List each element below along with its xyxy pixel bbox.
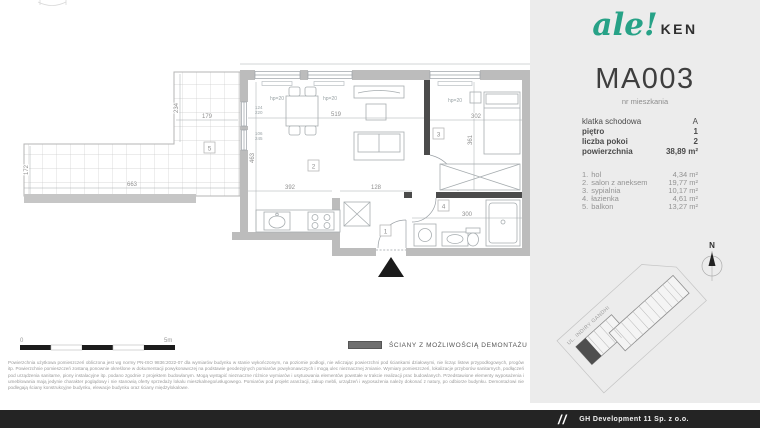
furniture-bath-hall [344,200,520,246]
svg-text:172: 172 [24,164,30,175]
developer-footer: // GH Development 11 Sp. z o.o. [0,410,760,428]
svg-text:361: 361 [468,134,474,145]
legend-label: ŚCIANY Z MOŻLIWOŚCIĄ DEMONTAŻU [389,342,527,349]
shower [486,200,520,246]
scale-end-label: 5m [164,338,172,344]
svg-text:hp=20: hp=20 [323,96,337,102]
svg-text:4: 4 [442,204,446,211]
room-list: 1. hol 4,34 m² 2. salon z aneksem 19,77 … [582,171,698,211]
svg-text:392: 392 [285,185,296,191]
stove [308,212,334,230]
svg-text:2: 2 [312,164,316,171]
nightstand [470,92,481,103]
legend: ŚCIANY Z MOŻLIWOŚCIĄ DEMONTAŻU [348,341,527,349]
svg-text:3: 3 [437,132,441,139]
developer-name: GH Development 11 Sp. z o.o. [579,416,689,423]
svg-text:128: 128 [371,185,382,191]
entrance-arrow [378,257,404,277]
svg-text:179: 179 [202,114,213,120]
brand-logo-script: ale! [592,10,657,40]
svg-text:300: 300 [462,212,473,218]
svg-text:220: 220 [255,110,263,115]
brand-logo-suffix: KEN [661,21,698,40]
washing-machine [414,224,436,246]
detail-label: powierzchnia [582,147,633,157]
brand-logo: ale! KEN [530,0,760,40]
radiators [262,82,472,86]
svg-text:hp=20: hp=20 [448,98,462,104]
svg-text:519: 519 [331,112,342,118]
detail-label: klatka schodowa [582,117,641,127]
detail-label: piętro [582,127,604,137]
svg-text:302: 302 [471,114,482,120]
wardrobe-bedroom [440,164,520,190]
detail-value: A [693,117,698,127]
room-list-item: 5. balkon 13,27 m² [582,203,698,211]
room-number-bathroom: 4 [438,200,449,211]
site-geometry: UL. INDIRY GANDHI [557,248,706,392]
floorplan-card: 519 463 392 128 302 361 300 663 234 179 … [0,0,760,428]
balcony-slab-edge [24,194,196,203]
demountable-wall-swatch [348,341,382,349]
scale-segments [20,345,175,350]
unit-details: klatka schodowa A piętro 1 liczba pokoi … [582,117,698,157]
armchair [366,104,386,120]
svg-text:245: 245 [255,136,263,141]
toilet [466,228,480,246]
disclaimer-text: Powierzchnia użytkowa pomieszczeń oblicz… [8,360,524,391]
bath-sink [442,232,468,246]
detail-value: 2 [694,137,698,147]
wardrobe-hall [344,202,370,226]
floor-plan: 519 463 392 128 302 361 300 663 234 179 … [0,0,530,330]
svg-text:463: 463 [250,152,256,163]
north-label: N [709,241,715,250]
north-arrow: N [702,241,722,281]
room-number-balcony: 5 [204,142,215,153]
detail-row-rooms: liczba pokoi 2 [582,137,698,147]
svg-text:1: 1 [384,229,388,236]
svg-text:234: 234 [174,102,180,113]
detail-row-area: powierzchnia 38,89 m² [582,147,698,157]
furniture-bedroom [440,92,520,190]
furniture-salon [286,86,404,160]
detail-value: 38,89 m² [666,147,698,157]
unit-caption: nr mieszkania [530,97,760,106]
site-plan: N UL. INDIRY GANDHI [540,236,754,400]
info-sidebar: ale! KEN MA003 nr mieszkania klatka scho… [530,0,760,403]
detail-row-floor: piętro 1 [582,127,698,137]
developer-logo-mark: // [558,412,567,427]
svg-text:5: 5 [208,146,212,153]
room-number-salon: 2 [308,160,319,171]
detail-label: liczba pokoi [582,137,628,147]
scale-start-label: 0 [20,338,24,344]
detail-row-staircase: klatka schodowa A [582,117,698,127]
context-lines [38,0,66,6]
furniture-kitchen [256,210,340,232]
room-number-hall: 1 [380,225,391,236]
room-number-bedroom: 3 [433,128,444,139]
svg-text:hp=20: hp=20 [270,96,284,102]
scale-bar: 0 5m [14,334,194,354]
unit-code: MA003 [530,63,760,96]
dining-table [286,96,318,126]
svg-text:663: 663 [127,182,138,188]
detail-value: 1 [694,127,698,137]
